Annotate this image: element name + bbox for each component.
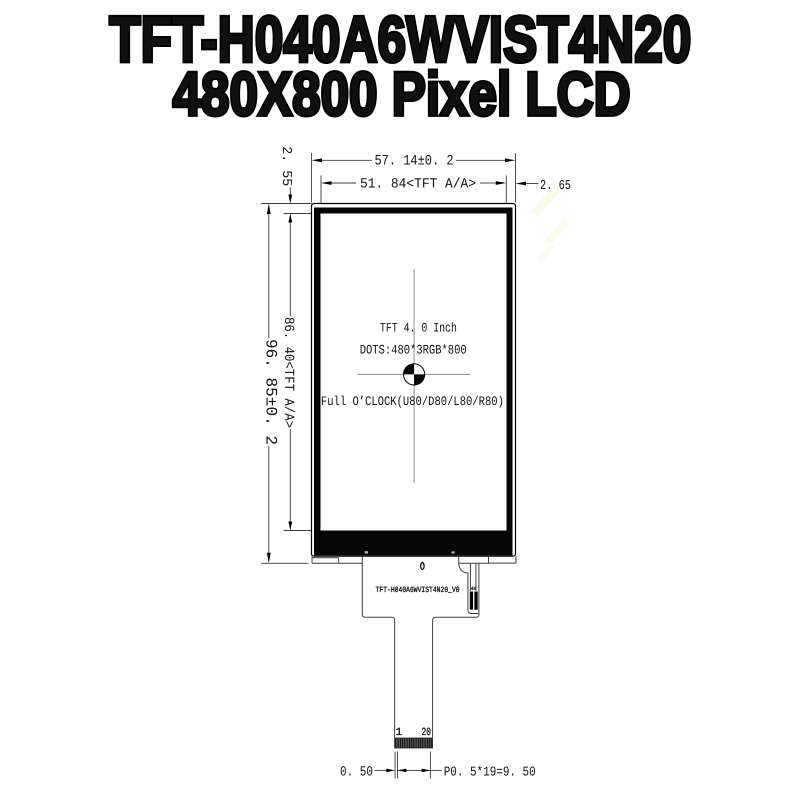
svg-text:4K: 4K (470, 586, 476, 592)
svg-text:P0. 5*19=9. 50: P0. 5*19=9. 50 (444, 765, 536, 780)
svg-text:DOTS:480*3RGB*800: DOTS:480*3RGB*800 (360, 342, 467, 357)
svg-text:51. 84<TFT A/A>: 51. 84<TFT A/A> (360, 177, 476, 193)
svg-text:480X800 Pixel LCD: 480X800 Pixel LCD (173, 60, 631, 129)
svg-text:0. 50: 0. 50 (340, 764, 373, 780)
svg-text:Full O’CLOCK(U80/D80/L80/R80): Full O’CLOCK(U80/D80/L80/R80) (321, 394, 504, 409)
svg-text:2. 65: 2. 65 (540, 179, 571, 194)
svg-text:57. 14±0. 2: 57. 14±0. 2 (375, 154, 454, 170)
svg-text:2. 55: 2. 55 (278, 146, 293, 186)
svg-text:TFT 4. 0 Inch: TFT 4. 0 Inch (380, 320, 457, 335)
svg-text:1: 1 (395, 727, 402, 739)
svg-text:96. 85±0. 2: 96. 85±0. 2 (261, 339, 279, 445)
svg-text:TFT-H040A6WVIST4N20_V0: TFT-H040A6WVIST4N20_V0 (376, 586, 460, 595)
svg-text:86. 40<TFT A/A>: 86. 40<TFT A/A> (280, 317, 296, 428)
svg-text:20: 20 (421, 727, 431, 739)
